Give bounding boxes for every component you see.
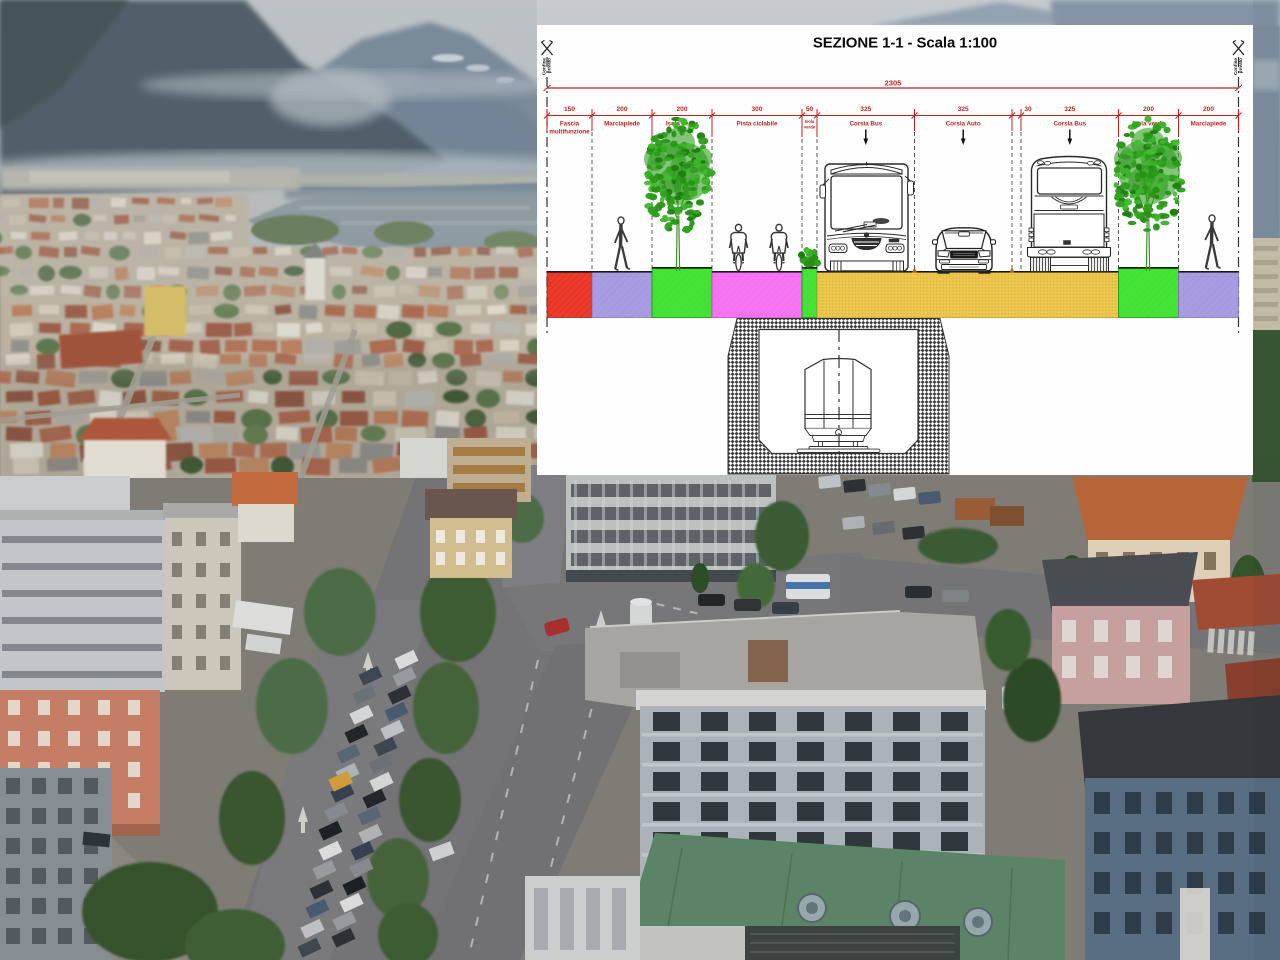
svg-text:multifunzione: multifunzione (549, 129, 590, 136)
svg-text:Fascia: Fascia (560, 121, 580, 128)
svg-text:50: 50 (806, 106, 814, 113)
svg-text:2305: 2305 (885, 79, 903, 88)
svg-text:Pista ciclabile: Pista ciclabile (737, 121, 778, 128)
svg-text:Isola: Isola (805, 119, 815, 124)
svg-text:Corsia Bus: Corsia Bus (849, 121, 882, 128)
svg-text:Corsia Bus: Corsia Bus (1053, 121, 1086, 128)
svg-text:325: 325 (958, 106, 969, 113)
svg-text:325: 325 (1064, 106, 1075, 113)
svg-text:30: 30 (1024, 106, 1032, 113)
svg-text:300: 300 (751, 106, 762, 113)
svg-text:Marciapiede: Marciapiede (604, 121, 640, 128)
svg-text:Corsia Auto: Corsia Auto (946, 121, 981, 128)
svg-text:150: 150 (564, 106, 575, 113)
svg-text:200: 200 (1203, 106, 1214, 113)
svg-text:Marciapiede: Marciapiede (1191, 121, 1227, 128)
svg-text:privato: privato (547, 58, 552, 74)
svg-text:200: 200 (676, 106, 687, 113)
svg-text:verde: verde (804, 125, 816, 130)
svg-text:SEZIONE 1-1 - Scala 1:100: SEZIONE 1-1 - Scala 1:100 (813, 35, 997, 52)
svg-text:200: 200 (1143, 106, 1154, 113)
svg-text:privato: privato (1238, 58, 1243, 74)
svg-text:200: 200 (616, 106, 627, 113)
svg-text:325: 325 (860, 106, 871, 113)
